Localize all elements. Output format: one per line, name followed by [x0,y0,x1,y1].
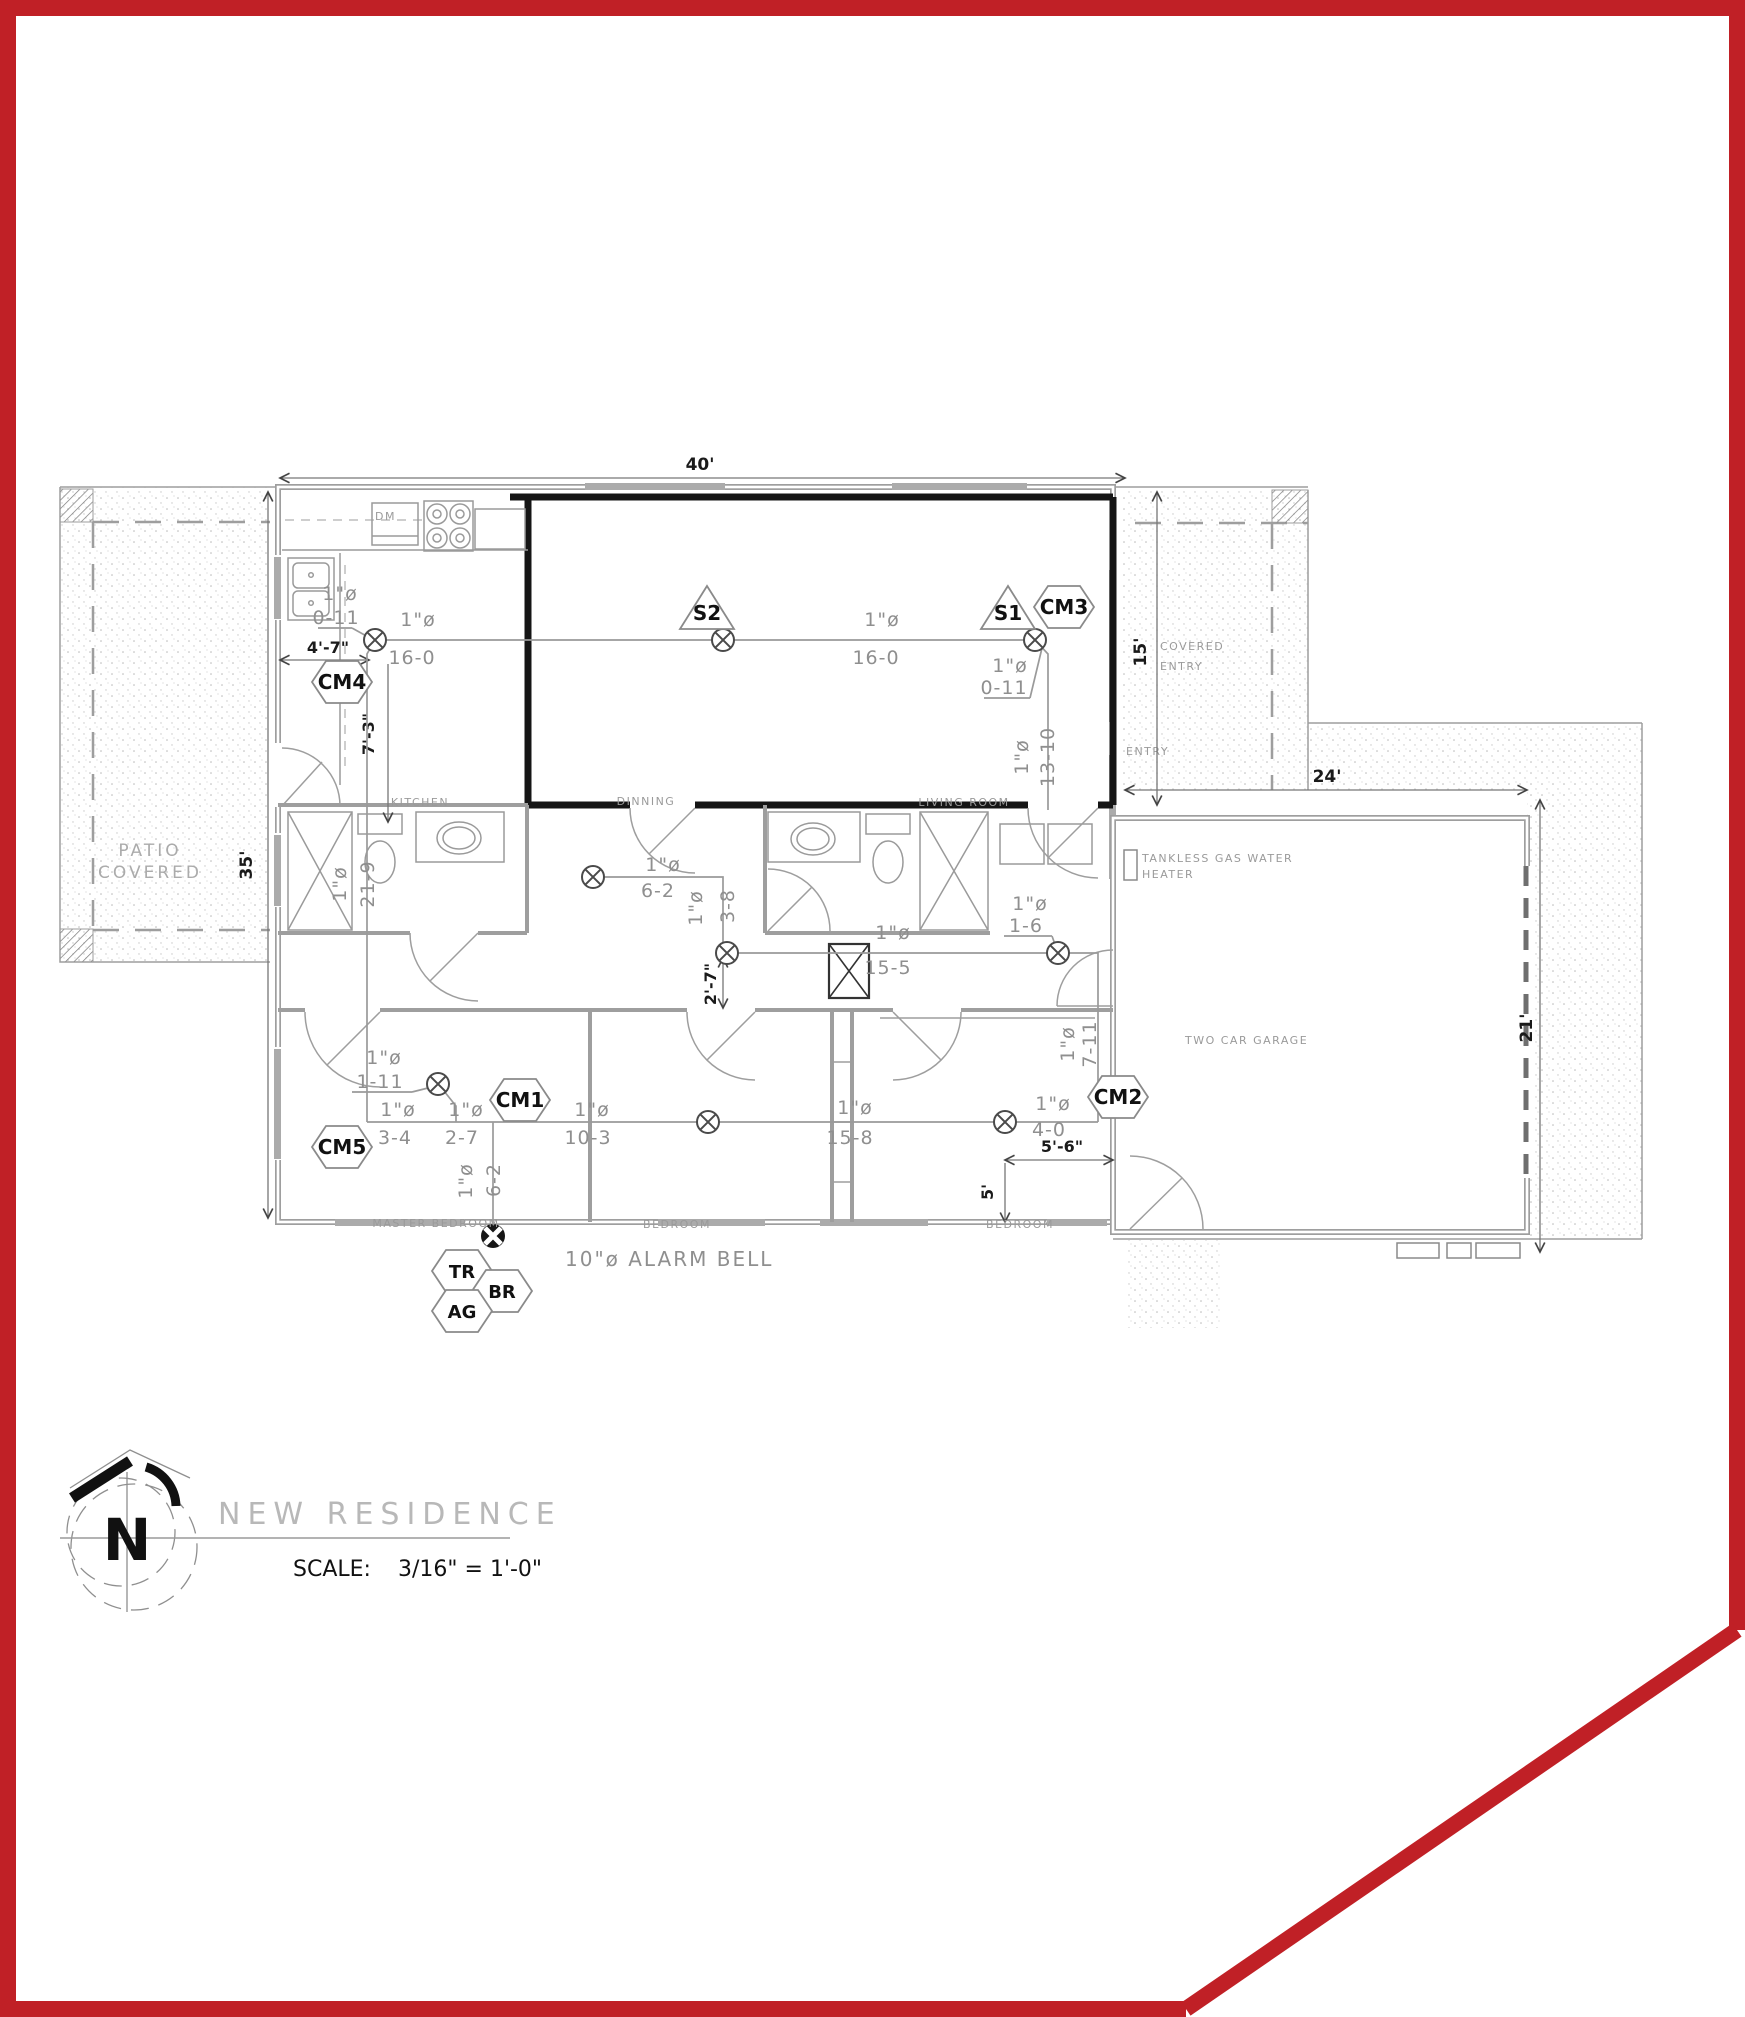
living-label: LIVING ROOM [918,796,1009,809]
svg-text:6-2: 6-2 [483,1163,505,1197]
toilet2 [866,814,910,834]
svg-text:BR: BR [488,1282,516,1303]
floor-plan-canvas: PATIO COVERED COVERED ENTRY ENTRY [0,0,1745,2017]
svg-text:13-10: 13-10 [1037,727,1059,787]
svg-text:1"ø: 1"ø [366,1047,401,1069]
conduit-labels: 1"ø 0-11 1"ø 16-0 1"ø 16-0 1"ø 0-11 1"ø … [312,583,1101,1199]
bedroom-right-label: BEDROOM [986,1218,1054,1231]
entry-label: ENTRY [1126,745,1169,758]
bathroom1-fixtures [288,812,504,930]
conduit-devices [364,629,1069,1248]
svg-text:1-6: 1-6 [1009,915,1043,937]
svg-text:21-9: 21-9 [357,860,379,907]
water-heater-label-1: TANKLESS GAS WATER [1141,852,1293,865]
svg-text:6-2: 6-2 [641,880,675,902]
svg-text:1"ø: 1"ø [837,1097,872,1119]
dim-garage-height: 21' [1517,1014,1537,1043]
svg-text:7-11: 7-11 [1079,1020,1101,1067]
svg-text:16-0: 16-0 [388,647,435,669]
svg-text:15-8: 15-8 [826,1127,873,1149]
svg-text:1"ø: 1"ø [448,1099,483,1121]
svg-text:1"ø: 1"ø [875,922,910,944]
svg-text:CM1: CM1 [496,1088,545,1112]
svg-text:S1: S1 [994,601,1022,625]
scale-label: SCALE: [293,1557,371,1582]
svg-text:TR: TR [449,1262,475,1283]
svg-text:AG: AG [448,1302,477,1323]
svg-text:16-0: 16-0 [852,647,899,669]
dim-hall-offset: 2'-7" [701,963,720,1005]
dim-overall-height: 35' [237,851,257,880]
svg-text:1"ø: 1"ø [574,1099,609,1121]
covered-entry-label-2: ENTRY [1160,660,1203,673]
svg-text:0-11: 0-11 [312,607,359,629]
patio-label-2: COVERED [98,863,202,883]
water-heater-label-2: HEATER [1142,868,1194,881]
dim-kitchen-drop: 7'-3" [359,713,378,755]
svg-text:1"ø: 1"ø [1057,1026,1079,1061]
svg-text:4-0: 4-0 [1032,1119,1066,1141]
toilet1 [358,814,402,834]
dim-entry-height: 15' [1131,638,1151,667]
svg-text:1"ø: 1"ø [329,866,351,901]
dim-garage-width: 24' [1313,767,1342,787]
svg-text:3-8: 3-8 [717,889,739,923]
svg-text:1"ø: 1"ø [455,1163,477,1198]
svg-text:1"ø: 1"ø [1012,893,1047,915]
attic-access [829,944,869,998]
garage-label: TWO CAR GARAGE [1184,1034,1308,1047]
svg-text:1"ø: 1"ø [685,890,707,925]
door-swings [282,748,1203,1229]
garage [1113,818,1534,1258]
dim-kitchen-offset: 4'-7" [307,638,349,657]
north-letter: N [103,1506,152,1574]
covered-entry-label-1: COVERED [1160,640,1224,653]
conduit-lines [318,628,1098,1225]
svg-text:3-4: 3-4 [378,1127,412,1149]
svg-text:1"ø: 1"ø [322,583,357,605]
bedroom-mid-label: BEDROOM [643,1218,711,1231]
linen-shelf-2 [1048,824,1092,864]
alarm-bell-label: 10"ø ALARM BELL [565,1247,773,1271]
svg-text:0-11: 0-11 [980,677,1027,699]
master-bedroom-label: MASTER BEDROOM [372,1217,499,1230]
dishwasher-label: DM [375,510,396,523]
svg-text:1-11: 1-11 [356,1071,403,1093]
svg-text:S2: S2 [693,601,721,625]
garage-door-hardware [1397,1243,1520,1258]
svg-text:1"ø: 1"ø [992,655,1027,677]
drawing-title: NEW RESIDENCE [218,1497,562,1532]
svg-text:1"ø: 1"ø [1035,1093,1070,1115]
scale-value: 3/16" = 1'-0" [398,1557,542,1582]
svg-text:1"ø: 1"ø [864,609,899,631]
svg-text:1"ø: 1"ø [645,854,680,876]
svg-text:1"ø: 1"ø [1011,739,1033,774]
water-heater [1124,850,1137,880]
svg-text:CM5: CM5 [318,1135,367,1159]
svg-text:15-5: 15-5 [864,957,911,979]
svg-text:CM3: CM3 [1040,595,1089,619]
dim-bed-offset-h: 5' [978,1184,997,1200]
svg-text:CM2: CM2 [1094,1085,1143,1109]
refrigerator [475,509,525,549]
dining-label: DINNING [617,795,676,808]
patio-label-1: PATIO [118,841,181,861]
svg-text:2-7: 2-7 [445,1127,479,1149]
kitchen-label: KITCHEN [391,796,449,809]
floor-plan-sheet: PATIO COVERED COVERED ENTRY ENTRY [0,0,1745,2017]
stove [424,501,473,551]
dim-overall-width: 40' [686,455,715,475]
svg-text:1"ø: 1"ø [400,609,435,631]
svg-text:10-3: 10-3 [564,1127,611,1149]
svg-text:CM4: CM4 [318,670,367,694]
svg-text:1"ø: 1"ø [380,1099,415,1121]
